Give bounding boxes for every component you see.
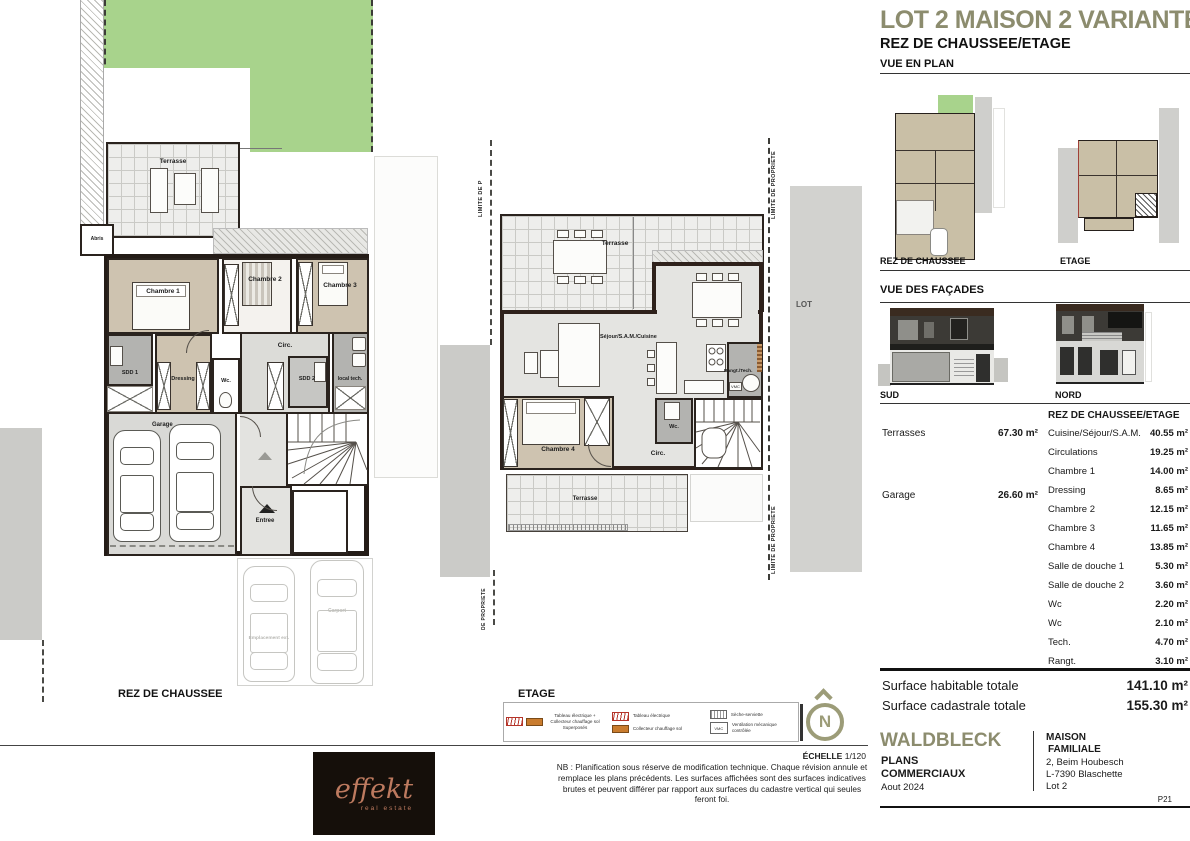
wc-etage-label: Wc. (655, 424, 693, 430)
area-label: Chambre 1 (1048, 466, 1095, 477)
area-label: Wc (1048, 599, 1062, 610)
rdc-abris-label: Abris (80, 236, 114, 242)
outdoor-row: Garage26.60 m² (882, 490, 1038, 501)
area-value: 19.25 m² (1150, 447, 1188, 458)
legend-label-superposes: Tableau électrique + Collecteur chauffag… (546, 713, 604, 730)
local-tech-label: local tech. (330, 376, 370, 382)
dining-table (692, 282, 742, 318)
titleblock-divider (0, 745, 868, 746)
seche-serviette-icon (710, 710, 727, 719)
area-row: Rangt.3.10 m² (1048, 656, 1188, 667)
area-label: Chambre 4 (1048, 542, 1095, 553)
area-row: Dressing8.65 m² (1048, 485, 1188, 496)
stairs-etage (694, 398, 763, 469)
dining-chair-2 (712, 273, 723, 281)
area-value: 5.30 m² (1155, 561, 1188, 572)
facade-nord-label: NORD (1055, 390, 1082, 400)
lot-label: LOT (796, 300, 812, 309)
legend-col-3: Sèche-serviette VMCVentilation mécanique… (710, 710, 796, 734)
area-value: 14.00 m² (1150, 466, 1188, 477)
dining-chair-6 (728, 319, 739, 327)
brand-name: WALDBLECK (880, 730, 1001, 752)
vmc-icon: VMC (710, 722, 728, 734)
dressing-wardrobe-right (196, 362, 210, 410)
kitchen-island (656, 342, 677, 394)
client-line2: FAMILIALE (1048, 744, 1101, 755)
coffee-table (524, 352, 538, 374)
client-addr2: L-7390 Blaschette (1046, 769, 1123, 780)
terrace-table (174, 173, 196, 205)
dressing-label: Dressing (153, 376, 213, 382)
outdoor-value: 67.30 m² (998, 428, 1038, 439)
garage-car-right (169, 424, 221, 542)
outdoor-chair-2 (574, 230, 586, 238)
limite-propriete-left-top: LIMITE DE P (478, 143, 484, 217)
area-value: 12.15 m² (1150, 504, 1188, 515)
legend-item-superposes: Tableau électrique + Collecteur chauffag… (506, 713, 608, 730)
vmc-box: VMC (729, 382, 742, 391)
area-row: Chambre 212.15 m² (1048, 504, 1188, 515)
area-label: Cuisine/Séjour/S.A.M. (1048, 428, 1141, 439)
scale-line: ÉCHELLE 1/120 (566, 751, 866, 761)
wc-toilet (219, 392, 232, 408)
area-row: Tech.4.70 m² (1048, 637, 1188, 648)
vmc-label: VMC (731, 384, 740, 389)
divider (880, 270, 1190, 271)
legend-label-vmc: Ventilation mécanique contrôlée (732, 722, 796, 733)
area-value: 2.20 m² (1155, 599, 1188, 610)
kitchen-hob (706, 344, 726, 372)
etage-plan-title: ETAGE (518, 688, 555, 700)
sdd1-washbasin (110, 346, 123, 366)
emplacement-label: Emplacement ext. (240, 636, 298, 641)
carport-label: Carport (312, 608, 362, 614)
effekt-logo-tagline: real estate (361, 805, 413, 812)
kitchen-stool-2 (647, 364, 655, 372)
outdoor-chair-5 (574, 276, 586, 284)
etage-terrasse-haut-label: Terrasse (580, 240, 650, 247)
total-label: Surface habitable totale (882, 678, 1019, 693)
sdd1-label: SDD 1 (107, 370, 153, 376)
wardrobe-chambre-4b (584, 398, 610, 446)
dining-chair-3 (728, 273, 739, 281)
rdc-plan-title: REZ DE CHAUSSEE (118, 688, 223, 700)
limite-propriete-left-bottom: DE PROPRIETE (481, 570, 487, 630)
tech-appliance-1 (352, 337, 366, 351)
total-row-habitable: Surface habitable totale141.10 m² (882, 678, 1188, 693)
area-value: 3.60 m² (1155, 580, 1188, 591)
wardrobe-chambre-2 (224, 264, 239, 326)
plan-sheet: Terrasse Abris Chambre 1 Chambre 2 Chamb… (0, 0, 1190, 841)
car-emplacement (243, 566, 295, 682)
tech-appliance-2 (352, 353, 366, 367)
dim-line-etage (633, 217, 634, 309)
north-compass-icon: N (806, 703, 844, 741)
legend-label-tableau: Tableau électrique (633, 713, 670, 719)
property-line-etage-left (490, 140, 492, 345)
sofa-chaise (540, 350, 559, 378)
rangt-label: Rangt./Tech. (724, 369, 752, 374)
sofa (558, 323, 600, 387)
effekt-logo-name: effekt (335, 776, 413, 803)
doc-type-line1: PLANS (881, 755, 918, 767)
tech-hatch (335, 386, 366, 410)
dining-chair-4 (696, 319, 707, 327)
area-row: Wc2.20 m² (1048, 599, 1188, 610)
wardrobe-chambre-4 (503, 399, 518, 467)
area-row: Chambre 413.85 m² (1048, 542, 1188, 553)
rangt-wood-hatch (757, 344, 762, 372)
outdoor-chair-3 (591, 230, 603, 238)
area-label: Rangt. (1048, 656, 1076, 667)
garage-car-left (113, 430, 161, 542)
wc-rdc-label: Wc. (210, 378, 242, 384)
outdoor-value: 26.60 m² (998, 490, 1038, 501)
sheet-title: LOT 2 MAISON 2 VARIANTE 1 (880, 6, 1190, 35)
thumb-etage-label: ETAGE (1060, 256, 1090, 266)
boiler (742, 374, 760, 392)
area-label: Chambre 2 (1048, 504, 1095, 515)
area-row: Chambre 311.65 m² (1048, 523, 1188, 534)
client-addr3: Lot 2 (1046, 781, 1067, 792)
outdoor-chair-1 (557, 230, 569, 238)
area-value: 40.55 m² (1150, 428, 1188, 439)
area-label: Tech. (1048, 637, 1071, 648)
doc-date: Aout 2024 (881, 782, 924, 793)
area-label: Chambre 3 (1048, 523, 1095, 534)
effekt-logo: effekt real estate (313, 752, 435, 835)
thumb-rdc (893, 88, 1013, 254)
dining-chair-5 (712, 319, 723, 327)
sidewalk-strip-etage-left (440, 345, 490, 577)
totals-divider (880, 668, 1190, 671)
terrace-chair-left (150, 168, 168, 213)
area-label: Dressing (1048, 485, 1086, 496)
nb-note: NB : Planification sous réserve de modif… (556, 762, 868, 805)
section-vue-en-plan: VUE EN PLAN (880, 58, 954, 70)
property-line-etage-left2 (493, 570, 495, 625)
terrasse-bas-edge (508, 524, 628, 531)
sdd1-shower (107, 386, 153, 412)
garage-door-dashed (110, 545, 234, 547)
kitchen-stool-3 (647, 378, 655, 386)
wardrobe-chambre-3 (298, 262, 313, 326)
area-label: Circulations (1048, 447, 1098, 458)
area-row: Salle de douche 15.30 m² (1048, 561, 1188, 572)
area-label: Salle de douche 2 (1048, 580, 1124, 591)
garage-label: Garage (152, 422, 173, 428)
area-row: Wc2.10 m² (1048, 618, 1188, 629)
thumb-rdc-label: REZ DE CHAUSSEE (880, 256, 966, 266)
legend-col-2: Tableau électrique Collecteur chauffage … (612, 712, 706, 733)
area-label: Salle de douche 1 (1048, 561, 1124, 572)
chambre3-label: Chambre 3 (312, 282, 368, 289)
area-value: 13.85 m² (1150, 542, 1188, 553)
kitchen-counter (684, 380, 724, 394)
area-row: Chambre 114.00 m² (1048, 466, 1188, 477)
bed-chambre-4 (522, 399, 580, 445)
legend-label-collecteur: Collecteur chauffage sol (633, 726, 682, 732)
area-row: Circulations19.25 m² (1048, 447, 1188, 458)
footer-bottom-rule (880, 806, 1190, 808)
outdoor-chair-6 (591, 276, 603, 284)
area-value: 2.10 m² (1155, 618, 1188, 629)
outdoor-chair-4 (557, 276, 569, 284)
section-vue-des-facades: VUE DES FAÇADES (880, 284, 984, 296)
facade-nord (1052, 302, 1152, 392)
divider (880, 73, 1190, 74)
dressing-wardrobe-left (157, 362, 171, 410)
divider (880, 403, 1190, 404)
neighbor-terrace-outline (690, 474, 763, 522)
rdc-top-strip-hatch (213, 228, 368, 254)
area-row: Salle de douche 23.60 m² (1048, 580, 1188, 591)
facade-sud-label: SUD (880, 390, 899, 400)
neighbor-wall-hatch-rdc (80, 0, 104, 256)
entree-closet (292, 490, 348, 554)
area-row: Cuisine/Séjour/S.A.M.40.55 m² (1048, 428, 1188, 439)
sidewalk-strip-left (0, 428, 42, 640)
wc-etage-basin (664, 402, 680, 420)
north-letter: N (819, 712, 831, 732)
chambre2-label: Chambre 2 (238, 276, 292, 283)
legend-end-bar (800, 704, 803, 741)
total-value: 141.10 m² (1126, 678, 1188, 693)
sheet-subtitle: REZ DE CHAUSSEE/ETAGE (880, 36, 1071, 52)
property-line-bottom-left (42, 640, 44, 702)
tableau-electrique-icon (612, 712, 629, 721)
neighbor-strip-etage-right (790, 186, 862, 572)
legend-box: Tableau électrique + Collecteur chauffag… (503, 702, 799, 742)
bed-chambre-2 (242, 262, 272, 306)
area-value: 11.65 m² (1151, 523, 1189, 534)
entree-label: Entree (238, 518, 292, 524)
circ-wardrobe (267, 362, 284, 410)
total-value: 155.30 m² (1126, 698, 1188, 713)
tableau-electrique-icon (506, 717, 523, 726)
circ-rdc-label: Circ. (240, 342, 330, 349)
area-value: 3.10 m² (1155, 656, 1188, 667)
area-value: 8.65 m² (1155, 485, 1188, 496)
collecteur-icon (526, 718, 543, 726)
area-value: 4.70 m² (1155, 637, 1188, 648)
thumb-etage (1056, 105, 1181, 255)
limite-propriete-right-top: LIMITE DE PROPRIETE (771, 143, 777, 219)
doc-type-line2: COMMERCIAUX (881, 768, 965, 780)
scale-value: 1/120 (845, 751, 866, 761)
rdc-neighbor-outline (374, 156, 438, 478)
rdc-terrasse (106, 142, 240, 238)
total-row-cadastrale: Surface cadastrale totale155.30 m² (882, 698, 1188, 713)
property-line-etage-right (768, 138, 770, 580)
client-addr1: 2, Beim Houbesch (1046, 757, 1124, 768)
client-line1: MAISON (1046, 732, 1086, 743)
chambre1-label: Chambre 1 (107, 288, 219, 295)
outdoor-row: Terrasses67.30 m² (882, 428, 1038, 439)
footer-divider (1033, 731, 1034, 791)
stairs-rdc (286, 412, 369, 486)
garden-notch (104, 68, 250, 152)
collecteur-icon (612, 725, 629, 733)
area-label: Wc (1048, 618, 1062, 629)
kitchen-stool-1 (647, 350, 655, 358)
rdc-terrasse-label: Terrasse (106, 158, 240, 165)
area-table-header: REZ DE CHAUSSEE/ETAGE (1048, 410, 1180, 421)
landing-arrow (258, 452, 272, 460)
facade-sud (878, 306, 1008, 388)
etage-terrasse-bas-label: Terrasse (540, 496, 630, 502)
legend-label-seche: Sèche-serviette (731, 712, 763, 718)
car-carport (310, 560, 364, 684)
sejour-label: Séjour/S.A.M./Cuisine (600, 334, 657, 340)
terrace-chair-right (201, 168, 219, 213)
circ-etage-label: Circ. (638, 450, 678, 457)
chambre4-label: Chambre 4 (502, 446, 614, 453)
outdoor-label: Garage (882, 490, 915, 501)
outdoor-label: Terrasses (882, 428, 925, 439)
scale-label: ÉCHELLE (803, 751, 843, 761)
total-label: Surface cadastrale totale (882, 698, 1026, 713)
page-number: P21 (880, 795, 1172, 804)
sdd2-label: SDD 2 (286, 376, 328, 382)
limite-propriete-right-bottom: LIMITE DE PROPRIETE (771, 494, 777, 574)
dining-chair-1 (696, 273, 707, 281)
